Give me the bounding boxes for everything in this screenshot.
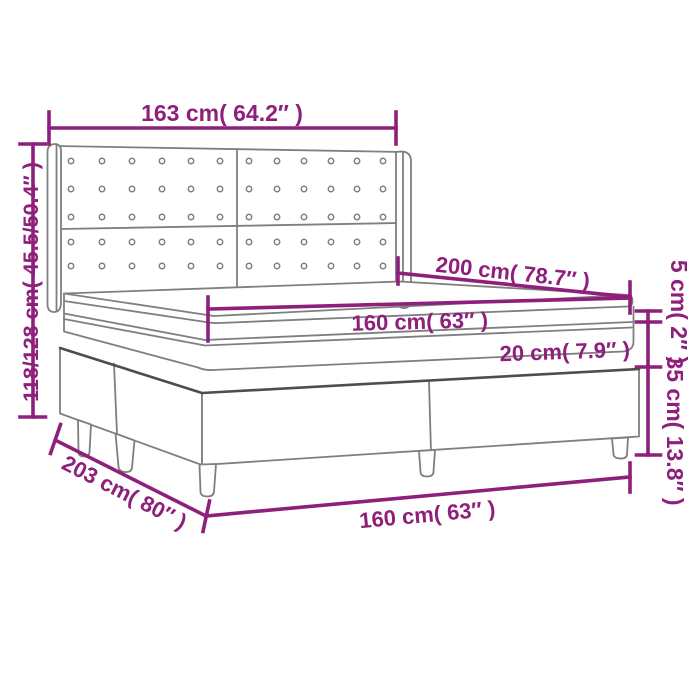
tuft-button: [301, 186, 306, 191]
tuft-button: [129, 158, 134, 163]
tuft-button: [99, 214, 104, 219]
tuft-button: [301, 263, 306, 268]
tuft-button: [188, 263, 193, 268]
tuft-button: [217, 239, 222, 244]
tuft-button: [328, 263, 333, 268]
tuft-button: [99, 186, 104, 191]
tuft-button: [301, 158, 306, 163]
tuft-button: [246, 158, 251, 163]
tuft-button: [217, 158, 222, 163]
label-headboard-width: 163 cm( 64.2″ ): [141, 100, 303, 126]
tuft-button: [159, 263, 164, 268]
label-topper-height: 5 cm( 2″ ): [666, 260, 692, 364]
leg: [419, 450, 435, 477]
tuft-button: [159, 158, 164, 163]
tuft-button: [380, 186, 385, 191]
label-mattress-height: 20 cm( 7.9″ ): [499, 337, 630, 367]
tuft-button: [246, 239, 251, 244]
headboard-left-wing: [48, 144, 62, 312]
tuft-button: [274, 263, 279, 268]
label-total-height: 118/128 cm( 45.5/50.4″ ): [19, 162, 43, 402]
tuft-button: [380, 214, 385, 219]
tuft-button: [301, 239, 306, 244]
leg: [116, 434, 135, 473]
tuft-button: [246, 214, 251, 219]
tuft-button: [301, 214, 306, 219]
tuft-button: [217, 214, 222, 219]
tuft-button: [159, 214, 164, 219]
tuft-button: [380, 263, 385, 268]
tuft-button: [68, 158, 73, 163]
tuft-button: [68, 214, 73, 219]
tuft-button: [354, 158, 359, 163]
tuft-button: [188, 158, 193, 163]
bed-dimension-diagram: 163 cm( 64.2″ ) 118/128 cm( 45.5/50.4″ )…: [0, 0, 700, 700]
tuft-button: [68, 263, 73, 268]
leg: [200, 464, 217, 497]
tuft-button: [328, 158, 333, 163]
tuft-button: [188, 186, 193, 191]
tuft-button: [188, 239, 193, 244]
tuft-button: [68, 239, 73, 244]
tuft-button: [99, 263, 104, 268]
tuft-button: [159, 186, 164, 191]
tuft-button: [159, 239, 164, 244]
leg: [612, 438, 628, 459]
tuft-button: [274, 214, 279, 219]
label-mattress-width: 160 cm( 63″ ): [351, 307, 488, 336]
tuft-button: [129, 263, 134, 268]
tuft-button: [99, 239, 104, 244]
dimension-bracket-topper-and-base-height: [637, 311, 661, 455]
tuft-button: [354, 263, 359, 268]
tuft-button: [68, 186, 73, 191]
tuft-button: [274, 158, 279, 163]
tuft-button: [274, 186, 279, 191]
tuft-button: [380, 158, 385, 163]
tuft-button: [188, 214, 193, 219]
tuft-button: [129, 186, 134, 191]
tuft-button: [129, 239, 134, 244]
tuft-button: [246, 263, 251, 268]
tuft-button: [99, 158, 104, 163]
box-spring-base: [60, 348, 639, 465]
tuft-button: [129, 214, 134, 219]
tuft-button: [380, 239, 385, 244]
tuft-button: [274, 239, 279, 244]
label-base-height: 35 cm( 13.8″ ): [662, 356, 688, 505]
tuft-button: [354, 186, 359, 191]
tuft-button: [328, 239, 333, 244]
tuft-button: [246, 186, 251, 191]
tuft-button: [217, 186, 222, 191]
tuft-button: [354, 239, 359, 244]
tuft-button: [217, 263, 222, 268]
tuft-button: [354, 214, 359, 219]
bed-dimension-diagram-page: 163 cm( 64.2″ ) 118/128 cm( 45.5/50.4″ )…: [0, 0, 700, 700]
tuft-button: [328, 214, 333, 219]
tuft-button: [328, 186, 333, 191]
